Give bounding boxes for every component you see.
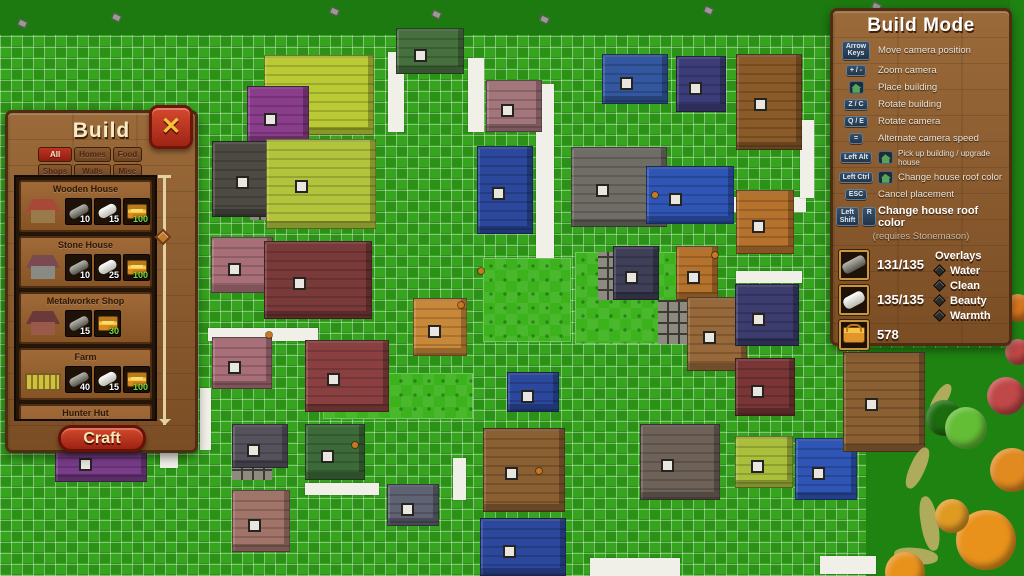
key-left-ctrl: Left Ctrl xyxy=(839,172,874,183)
tab-all[interactable]: All xyxy=(38,147,72,162)
building[interactable] xyxy=(613,246,659,300)
building[interactable] xyxy=(232,424,288,468)
rock-debris xyxy=(539,14,550,24)
overlay-label: Water xyxy=(950,265,980,277)
building[interactable] xyxy=(507,372,559,412)
key--: + / - xyxy=(846,65,866,76)
building[interactable] xyxy=(305,424,365,480)
key--: = xyxy=(849,133,863,144)
building[interactable] xyxy=(232,490,290,552)
building[interactable] xyxy=(387,484,439,526)
rock-debris xyxy=(329,6,340,16)
cost-log: 40 xyxy=(65,366,92,393)
stone-glyph xyxy=(841,289,866,310)
cost-value: 15 xyxy=(109,382,119,392)
shortcut-row: Z / CRotate building xyxy=(839,98,1003,111)
shortcut-row: Left AltPick up building / upgrade house xyxy=(839,149,1003,167)
shortcut-row: Q / ERotate camera xyxy=(839,115,1003,128)
key-left-shift: Left Shift xyxy=(836,207,860,226)
cost-log: 10 xyxy=(65,254,92,281)
shortcut-row: + / -Zoom camera xyxy=(839,64,1003,77)
build-item-wooden-house[interactable]: Wooden House1015100 xyxy=(19,180,152,232)
villager xyxy=(458,302,464,308)
building[interactable] xyxy=(483,428,565,512)
building[interactable] xyxy=(264,241,372,319)
building[interactable] xyxy=(640,424,720,500)
log-icon xyxy=(839,250,869,280)
item-name: Stone House xyxy=(21,238,150,250)
build-item-farm[interactable]: Farm4015100 xyxy=(19,348,152,400)
road-tile xyxy=(590,558,680,576)
build-item-metalworker-shop[interactable]: Metalworker Shop1530 xyxy=(19,292,152,344)
shortcut-keys: Left ShiftR xyxy=(839,207,873,226)
building[interactable] xyxy=(247,86,309,144)
tab-food[interactable]: Food xyxy=(113,147,142,162)
tree xyxy=(987,377,1024,415)
shortcut-list: Arrow KeysMove camera position+ / -Zoom … xyxy=(839,41,1003,229)
item-costs: 1025100 xyxy=(21,250,150,282)
shortcut-row: =Alternate camera speed xyxy=(839,132,1003,145)
building[interactable] xyxy=(646,166,734,224)
scrollbar-track[interactable] xyxy=(163,177,166,425)
key-arrow-keys: Arrow Keys xyxy=(842,41,870,60)
shortcut-keys: Z / C xyxy=(839,99,873,110)
shortcut-label: Move camera position xyxy=(878,45,971,56)
building[interactable] xyxy=(736,54,802,150)
building[interactable] xyxy=(477,146,533,234)
cost-value: 100 xyxy=(133,214,148,224)
key-z-c: Z / C xyxy=(844,99,867,110)
overlay-option-beauty[interactable]: Beauty xyxy=(935,295,1003,307)
road-tile xyxy=(820,556,876,574)
farm-thumb-crops xyxy=(25,373,61,391)
cost-value: 10 xyxy=(80,214,90,224)
cost-value: 10 xyxy=(80,270,90,280)
build-item-stone-house[interactable]: Stone House1025100 xyxy=(19,236,152,288)
building[interactable] xyxy=(602,54,668,104)
item-name: Hunter Hut xyxy=(21,406,150,418)
item-thumbnail xyxy=(23,308,63,338)
house-icon xyxy=(878,151,893,164)
house-icon xyxy=(849,81,864,94)
item-name: Farm xyxy=(21,350,150,362)
road-tile xyxy=(468,58,484,132)
shortcut-label: Cancel placement xyxy=(878,189,954,200)
stone-icon xyxy=(839,285,869,315)
cost-value: 100 xyxy=(133,382,148,392)
resource-stone: 135/135 xyxy=(839,285,931,315)
resource-log: 131/135 xyxy=(839,250,931,280)
overlay-checkbox[interactable] xyxy=(933,309,946,322)
game-screen: ✕ Build AllHomesFoodShopsWallsMisc Woode… xyxy=(0,0,1024,576)
road-tile xyxy=(453,458,466,500)
villager xyxy=(652,192,658,198)
key-esc: ESC xyxy=(845,189,867,200)
shortcut-label: Zoom camera xyxy=(878,65,937,76)
villager xyxy=(266,332,272,338)
build-item-hunter-hut[interactable]: Hunter Hut xyxy=(19,404,152,421)
building[interactable] xyxy=(735,284,799,346)
road-tile xyxy=(200,388,211,450)
house-icon xyxy=(878,171,893,184)
overlay-option-water[interactable]: Water xyxy=(935,265,1003,277)
shortcut-keys: Q / E xyxy=(839,116,873,127)
item-costs: 1015100 xyxy=(21,194,150,226)
resource-value: 131/135 xyxy=(877,257,924,272)
building[interactable] xyxy=(212,337,272,389)
thumb-body xyxy=(31,266,55,279)
scrollbar-thumb[interactable] xyxy=(155,229,172,246)
item-name: Metalworker Shop xyxy=(21,294,150,306)
shortcut-label: Place building xyxy=(878,82,937,93)
rock-debris xyxy=(431,9,442,19)
overlay-option-clean[interactable]: Clean xyxy=(935,280,1003,292)
rock-debris xyxy=(17,18,28,28)
shortcut-keys: Left Ctrl xyxy=(839,172,873,183)
villager xyxy=(712,252,718,258)
item-thumbnail xyxy=(23,196,63,226)
build-item-list: Wooden House1015100Stone House1025100Met… xyxy=(14,175,157,421)
craft-button[interactable]: Craft xyxy=(58,425,146,452)
resource-value: 135/135 xyxy=(877,292,924,307)
close-icon[interactable]: ✕ xyxy=(149,105,193,149)
shortcut-note: (requires Stonemason) xyxy=(839,231,1003,242)
cost-stone: 15 xyxy=(94,198,121,225)
key-r: R xyxy=(862,207,876,226)
cost-value: 15 xyxy=(80,326,90,336)
cost-value: 25 xyxy=(109,270,119,280)
overlay-label: Clean xyxy=(950,280,980,292)
item-name: Wooden House xyxy=(21,182,150,194)
cost-value: 30 xyxy=(109,326,119,336)
villager xyxy=(352,442,358,448)
shortcut-label: Pick up building / upgrade house xyxy=(898,149,1003,167)
cost-value: 100 xyxy=(133,270,148,280)
building[interactable] xyxy=(396,28,464,74)
cost-value: 40 xyxy=(80,382,90,392)
item-costs: 1530 xyxy=(21,306,150,338)
building[interactable] xyxy=(843,352,925,452)
building[interactable] xyxy=(736,190,794,254)
tree xyxy=(945,407,987,449)
building[interactable] xyxy=(735,436,793,488)
cost-log: 10 xyxy=(65,198,92,225)
cost-stone: 15 xyxy=(94,366,121,393)
farm-field[interactable] xyxy=(483,258,571,342)
overlays-section: Overlays WaterCleanBeautyWarmth xyxy=(931,250,1003,355)
tree xyxy=(935,499,969,533)
villager xyxy=(478,268,484,274)
rock-debris xyxy=(111,12,122,22)
build-mode-title: Build Mode xyxy=(839,15,1003,37)
cost-log: 15 xyxy=(65,310,92,337)
rock-debris xyxy=(703,5,714,15)
shortcut-keys xyxy=(839,81,873,94)
shortcut-label: Rotate camera xyxy=(878,116,940,127)
key-q-e: Q / E xyxy=(844,116,868,127)
road-tile xyxy=(736,271,802,283)
overlay-option-warmth[interactable]: Warmth xyxy=(935,310,1003,322)
item-costs: 4015100 xyxy=(21,362,150,394)
cost-chest: 30 xyxy=(94,310,121,337)
shortcut-row: Left CtrlChange house roof color xyxy=(839,171,1003,184)
building[interactable] xyxy=(735,358,795,416)
overlay-label: Beauty xyxy=(950,295,987,307)
tab-homes[interactable]: Homes xyxy=(74,147,110,162)
overlay-checkbox[interactable] xyxy=(933,279,946,292)
thumb-body xyxy=(31,322,55,335)
villager xyxy=(536,468,542,474)
overlay-checkbox[interactable] xyxy=(933,294,946,307)
road-tile xyxy=(800,120,814,198)
cost-chest: 100 xyxy=(123,254,150,281)
building[interactable] xyxy=(266,139,376,229)
shortcut-row: Place building xyxy=(839,81,1003,94)
basket-glyph xyxy=(843,327,865,343)
log-glyph xyxy=(841,254,867,275)
build-mode-panel: Build Mode Arrow KeysMove camera positio… xyxy=(830,8,1012,346)
overlays-title: Overlays xyxy=(935,250,1003,262)
shortcut-keys: = xyxy=(839,133,873,144)
shortcut-label: Alternate camera speed xyxy=(878,133,979,144)
resource-basket: 578 xyxy=(839,320,931,350)
building[interactable] xyxy=(676,56,726,112)
resource-value: 578 xyxy=(877,327,899,342)
shortcut-keys: + / - xyxy=(839,65,873,76)
shortcut-row: Arrow KeysMove camera position xyxy=(839,41,1003,60)
shortcut-row: Left ShiftRChange house roof color xyxy=(839,205,1003,229)
shortcut-keys: Left Alt xyxy=(839,152,873,163)
resource-list: 131/135135/135578 xyxy=(839,250,931,355)
item-thumbnail xyxy=(23,252,63,282)
building[interactable] xyxy=(486,80,542,132)
overlay-label: Warmth xyxy=(950,310,991,322)
overlay-checkbox[interactable] xyxy=(933,264,946,277)
cost-chest: 100 xyxy=(123,198,150,225)
shortcut-row: ESCCancel placement xyxy=(839,188,1003,201)
cost-value: 15 xyxy=(109,214,119,224)
resources-section: 131/135135/135578 Overlays WaterCleanBea… xyxy=(839,250,1003,355)
stone-tiles xyxy=(658,300,690,344)
building[interactable] xyxy=(305,340,389,412)
shortcut-label: Rotate building xyxy=(878,99,941,110)
shortcut-keys: ESC xyxy=(839,189,873,200)
building[interactable] xyxy=(480,518,566,576)
build-panel: ✕ Build AllHomesFoodShopsWallsMisc Woode… xyxy=(5,110,198,453)
item-thumbnail xyxy=(23,364,63,394)
item-thumbnail xyxy=(23,420,63,421)
shortcut-label: Change house roof color xyxy=(878,205,1003,229)
road-tile xyxy=(305,483,379,495)
shortcut-keys: Arrow Keys xyxy=(839,41,873,60)
key-left-alt: Left Alt xyxy=(840,152,872,163)
cost-chest: 100 xyxy=(123,366,150,393)
item-costs xyxy=(21,418,150,421)
cost-stone: 25 xyxy=(94,254,121,281)
shortcut-label: Change house roof color xyxy=(898,172,1002,183)
thumb-body xyxy=(31,210,55,223)
basket-icon xyxy=(839,320,869,350)
